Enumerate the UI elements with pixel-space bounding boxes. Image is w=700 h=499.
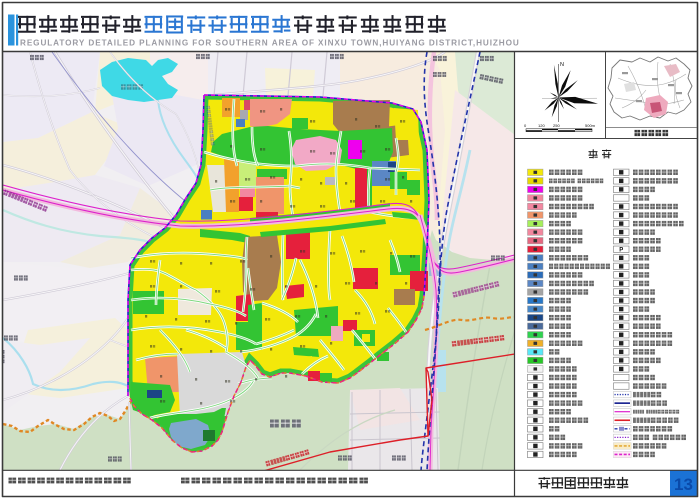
- svg-text:P: P: [619, 248, 623, 254]
- svg-text:120: 120: [538, 123, 545, 128]
- svg-text:REGULATORY DETAILED PLANNING F: REGULATORY DETAILED PLANNING FOR SOUTHER…: [20, 39, 520, 48]
- svg-text:13: 13: [674, 475, 693, 494]
- svg-text:250: 250: [553, 123, 560, 128]
- svg-text:500m: 500m: [585, 123, 596, 128]
- svg-text:N: N: [560, 62, 564, 68]
